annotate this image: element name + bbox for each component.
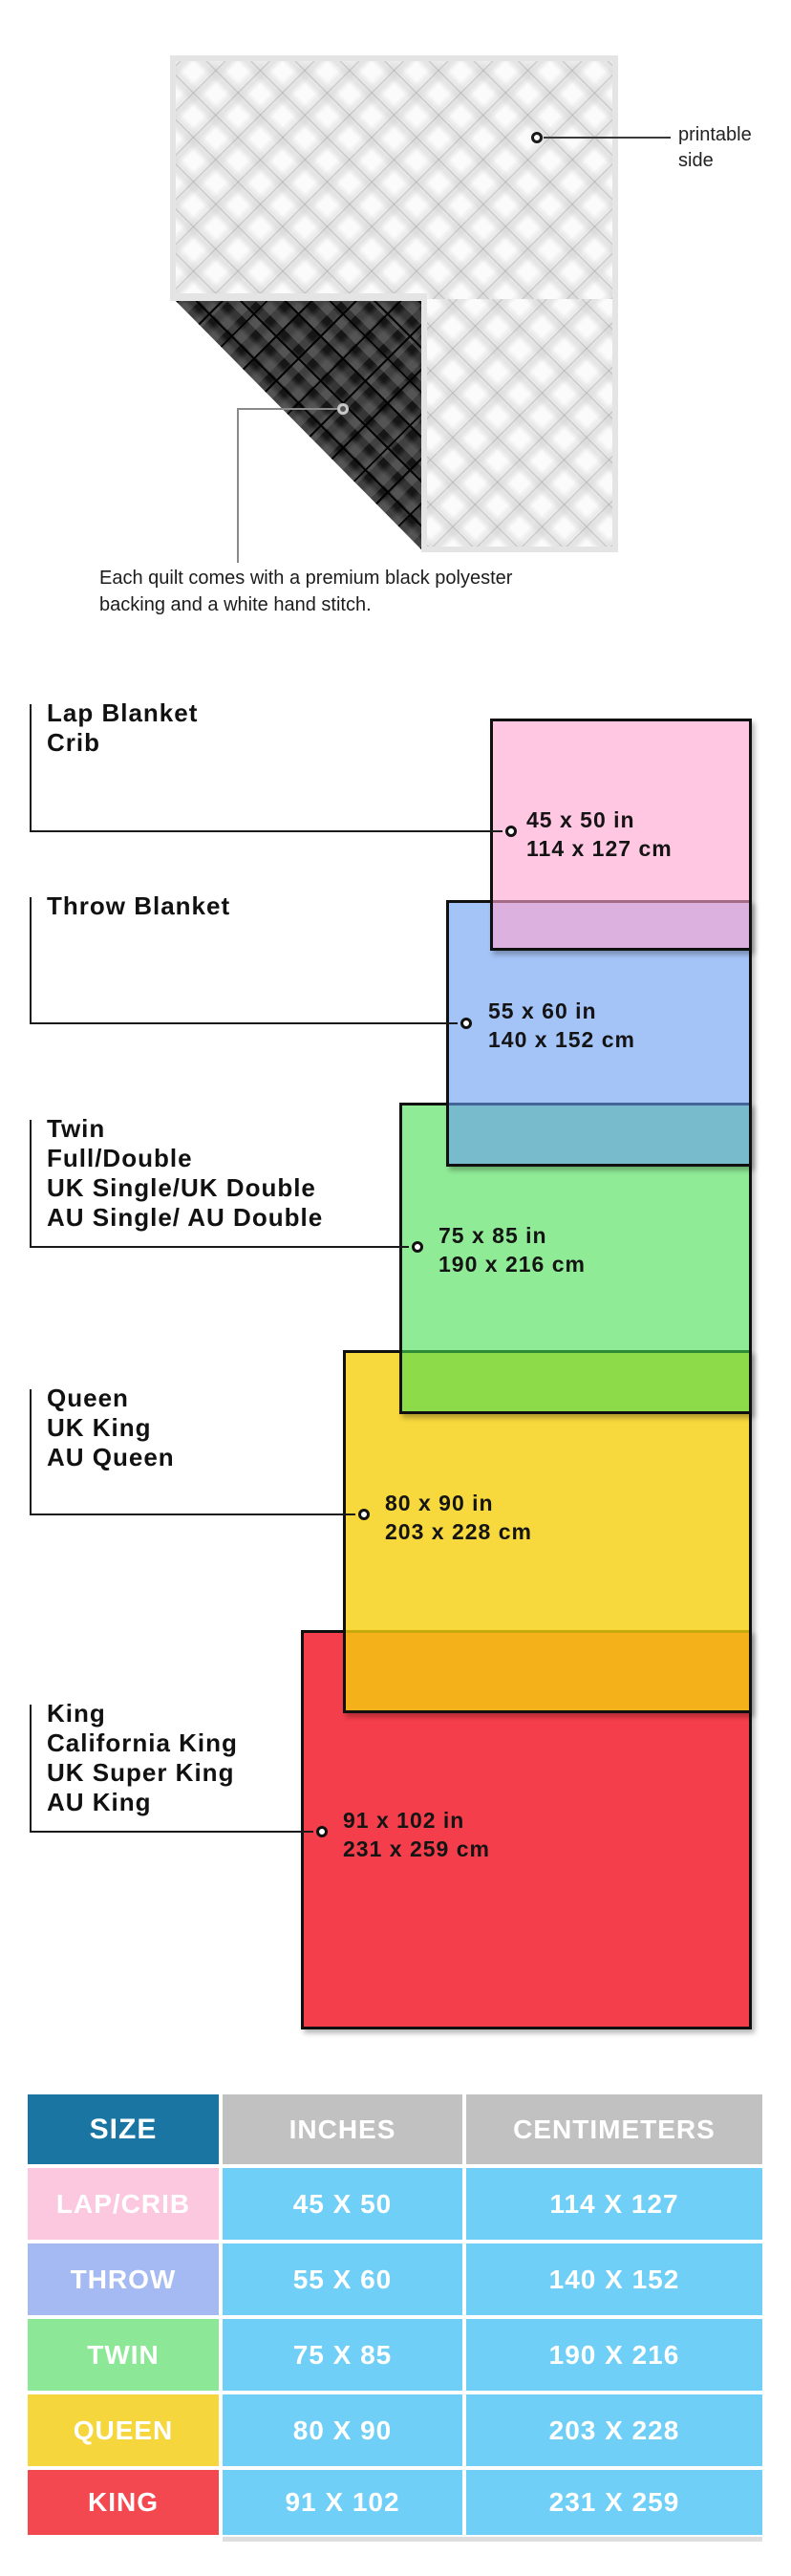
label-queen-line2: UK King xyxy=(47,1413,175,1443)
leader-dot-lap-icon xyxy=(505,826,517,837)
leader-dot-twin-icon xyxy=(412,1241,423,1253)
label-king-line3: UK Super King xyxy=(47,1758,238,1788)
dims-lap-cm: 114 x 127 cm xyxy=(526,834,673,863)
quilt-front-lower-image xyxy=(421,299,618,552)
table-header-centimeters: CENTIMETERS xyxy=(466,2094,762,2164)
label-lap-line1: Lap Blanket xyxy=(47,698,198,728)
label-lap-line2: Crib xyxy=(47,728,198,758)
label-king-line1: King xyxy=(47,1699,238,1728)
dims-throw-cm: 140 x 152 cm xyxy=(488,1025,635,1054)
table-row-lap-inches: 45 X 50 xyxy=(223,2168,462,2240)
label-king-line4: AU King xyxy=(47,1788,238,1817)
dims-king-cm: 231 x 259 cm xyxy=(343,1835,490,1863)
label-queen: Queen UK King AU Queen xyxy=(47,1384,175,1472)
black-backing-leader-v xyxy=(237,408,239,563)
quilt-black-backing-fold xyxy=(176,301,421,549)
quilt-caption-line1: Each quilt comes with a premium black po… xyxy=(99,565,512,591)
size-table: SIZE INCHES CENTIMETERS LAP/CRIB 45 X 50… xyxy=(28,2094,762,2535)
dims-lap: 45 x 50 in 114 x 127 cm xyxy=(526,805,673,863)
label-lap-crib: Lap Blanket Crib xyxy=(47,698,198,758)
table-row-queen-cm: 203 X 228 xyxy=(466,2394,762,2466)
quilt-caption: Each quilt comes with a premium black po… xyxy=(99,565,512,618)
label-king: King California King UK Super King AU Ki… xyxy=(47,1699,238,1817)
label-queen-line1: Queen xyxy=(47,1384,175,1413)
quilt-front-image xyxy=(170,55,618,299)
printable-side-label-line2: side xyxy=(678,148,752,174)
table-row-king-size: KING xyxy=(28,2470,219,2535)
table-header-inches: INCHES xyxy=(223,2094,462,2164)
table-row-queen-size: QUEEN xyxy=(28,2394,219,2466)
printable-side-label-line1: printable xyxy=(678,122,752,148)
leader-dot-queen-icon xyxy=(358,1509,370,1520)
table-row-lap-size: LAP/CRIB xyxy=(28,2168,219,2240)
printable-side-leader-line xyxy=(544,137,671,139)
printable-side-label: printable side xyxy=(678,122,752,174)
dims-twin-cm: 190 x 216 cm xyxy=(438,1250,586,1278)
leader-tick-lap xyxy=(30,704,32,830)
dims-queen-inches: 80 x 90 in xyxy=(385,1489,532,1517)
table-row-twin-inches: 75 X 85 xyxy=(223,2319,462,2391)
table-row-throw-size: THROW xyxy=(28,2243,219,2315)
table-row-queen-inches: 80 X 90 xyxy=(223,2394,462,2466)
dims-king-inches: 91 x 102 in xyxy=(343,1806,490,1835)
leader-dot-throw-icon xyxy=(460,1018,472,1029)
leader-dot-king-icon xyxy=(316,1826,328,1837)
table-row-throw-inches: 55 X 60 xyxy=(223,2243,462,2315)
table-row-lap-cm: 114 X 127 xyxy=(466,2168,762,2240)
label-queen-line3: AU Queen xyxy=(47,1443,175,1472)
leader-line-lap xyxy=(30,830,502,832)
printable-side-marker-icon xyxy=(531,132,543,143)
table-row-throw-cm: 140 X 152 xyxy=(466,2243,762,2315)
leader-line-throw xyxy=(30,1022,458,1024)
label-king-line2: California King xyxy=(47,1728,238,1758)
table-row-twin-cm: 190 X 216 xyxy=(466,2319,762,2391)
table-header-size: SIZE xyxy=(28,2094,219,2164)
dims-throw-inches: 55 x 60 in xyxy=(488,997,635,1025)
black-backing-leader-h xyxy=(239,408,337,410)
quilt-caption-line2: backing and a white hand stitch. xyxy=(99,591,512,618)
quilt-fold-binding xyxy=(170,293,427,301)
dims-throw: 55 x 60 in 140 x 152 cm xyxy=(488,997,635,1054)
leader-tick-twin xyxy=(30,1120,32,1246)
dims-lap-inches: 45 x 50 in xyxy=(526,805,673,834)
table-shadow xyxy=(223,2537,762,2542)
label-twin: Twin Full/Double UK Single/UK Double AU … xyxy=(47,1114,323,1233)
quilt-size-infographic: printable side Each quilt comes with a p… xyxy=(0,0,791,2576)
dims-king: 91 x 102 in 231 x 259 cm xyxy=(343,1806,490,1863)
leader-tick-king xyxy=(30,1705,32,1831)
label-twin-line2: Full/Double xyxy=(47,1144,323,1173)
table-row-king-cm: 231 X 259 xyxy=(466,2470,762,2535)
leader-line-queen xyxy=(30,1513,355,1515)
dims-twin-inches: 75 x 85 in xyxy=(438,1221,586,1250)
table-row-twin-size: TWIN xyxy=(28,2319,219,2391)
leader-line-king xyxy=(30,1831,313,1833)
label-throw: Throw Blanket xyxy=(47,891,230,921)
table-row-king-inches: 91 X 102 xyxy=(223,2470,462,2535)
black-backing-marker-icon xyxy=(337,403,349,415)
leader-tick-throw xyxy=(30,897,32,1022)
label-twin-line4: AU Single/ AU Double xyxy=(47,1203,323,1233)
dims-queen-cm: 203 x 228 cm xyxy=(385,1517,532,1546)
dims-twin: 75 x 85 in 190 x 216 cm xyxy=(438,1221,586,1278)
label-twin-line3: UK Single/UK Double xyxy=(47,1173,323,1203)
dims-queen: 80 x 90 in 203 x 228 cm xyxy=(385,1489,532,1546)
leader-line-twin xyxy=(30,1246,409,1248)
leader-tick-queen xyxy=(30,1389,32,1513)
label-twin-line1: Twin xyxy=(47,1114,323,1144)
label-throw-line1: Throw Blanket xyxy=(47,891,230,921)
